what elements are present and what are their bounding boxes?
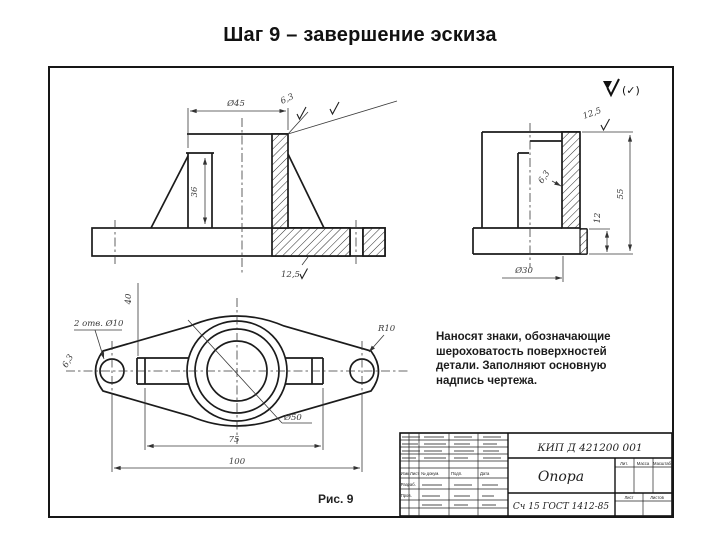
front-section-wall-hatch [272, 134, 288, 228]
dim-label-r10: R10 [377, 324, 396, 334]
roughness-check-icon [297, 107, 306, 119]
general-roughness-mark: (✓) [603, 79, 640, 97]
plan-view: 2 отв. Ø10 6,3 40 R10 Ø50 75 100 [61, 283, 408, 472]
cell-masshtab: Масштаб [653, 461, 672, 466]
dim-label-dia30: Ø30 [514, 265, 533, 276]
drawing-sheet-frame: Ø45 6,3 36 12,5 [48, 66, 674, 518]
row-razrab: Разраб. [401, 482, 416, 487]
part-name: Опора [538, 469, 584, 485]
dim-label-12: 12 [593, 213, 603, 224]
cell-lit: Лит. [620, 461, 628, 466]
col-izm: Изм. [401, 471, 410, 476]
cell-massa: Масса [637, 461, 650, 466]
col-dokum: № докум. [421, 471, 439, 476]
front-view: Ø45 6,3 36 12,5 [92, 92, 397, 280]
roughness-check-icon [330, 102, 339, 114]
side-view: 12,5 6,3 55 12 Ø30 [473, 106, 633, 282]
technical-drawing: Ø45 6,3 36 12,5 [50, 68, 672, 516]
side-section-foot-hatch [580, 229, 587, 254]
title-block: Изм. Лист № докум. Подп. Дата Разраб. Пр… [400, 433, 672, 516]
dim-label-75: 75 [229, 435, 240, 445]
dim-label-dia50: Ø50 [283, 412, 302, 423]
dim-label-holes: 2 отв. Ø10 [73, 318, 124, 329]
slide: Шаг 9 – завершение эскиза [0, 0, 720, 540]
front-section-base-end-hatch [363, 228, 385, 256]
col-data: Дата [480, 471, 490, 476]
roughness-label-side-wall: 6,3 [536, 169, 552, 186]
cell-list: Лист [624, 495, 633, 500]
side-section-wall-hatch [562, 132, 580, 228]
col-list: Лист [410, 471, 419, 476]
dim-label-100: 100 [229, 457, 246, 467]
material: Сч 15 ГОСТ 1412-85 [513, 502, 609, 512]
dim-label-55: 55 [616, 189, 626, 200]
designation: КИП Д 421200 001 [536, 442, 642, 454]
roughness-check-icon [601, 119, 610, 130]
dim-label-dia45: Ø45 [226, 98, 245, 109]
dim-label-36: 36 [190, 186, 200, 197]
roughness-label-side-top: 12,5 [582, 106, 603, 122]
cell-listov: Листов [650, 495, 664, 500]
dim-label-40: 40 [124, 293, 134, 305]
col-podp: Подп. [451, 471, 462, 476]
front-section-base-hatch [272, 228, 350, 256]
instruction-note: Наносят знаки, обозначающие шероховатост… [436, 330, 634, 389]
general-roughness-label: (✓) [622, 84, 640, 97]
figure-caption: Рис. 9 [318, 492, 408, 506]
page-title: Шаг 9 – завершение эскиза [0, 24, 720, 47]
roughness-check-icon [300, 269, 308, 279]
roughness-label-top: 6,3 [279, 92, 295, 107]
roughness-label-base: 12,5 [281, 270, 300, 280]
roughness-label-holes: 6,3 [61, 353, 76, 370]
